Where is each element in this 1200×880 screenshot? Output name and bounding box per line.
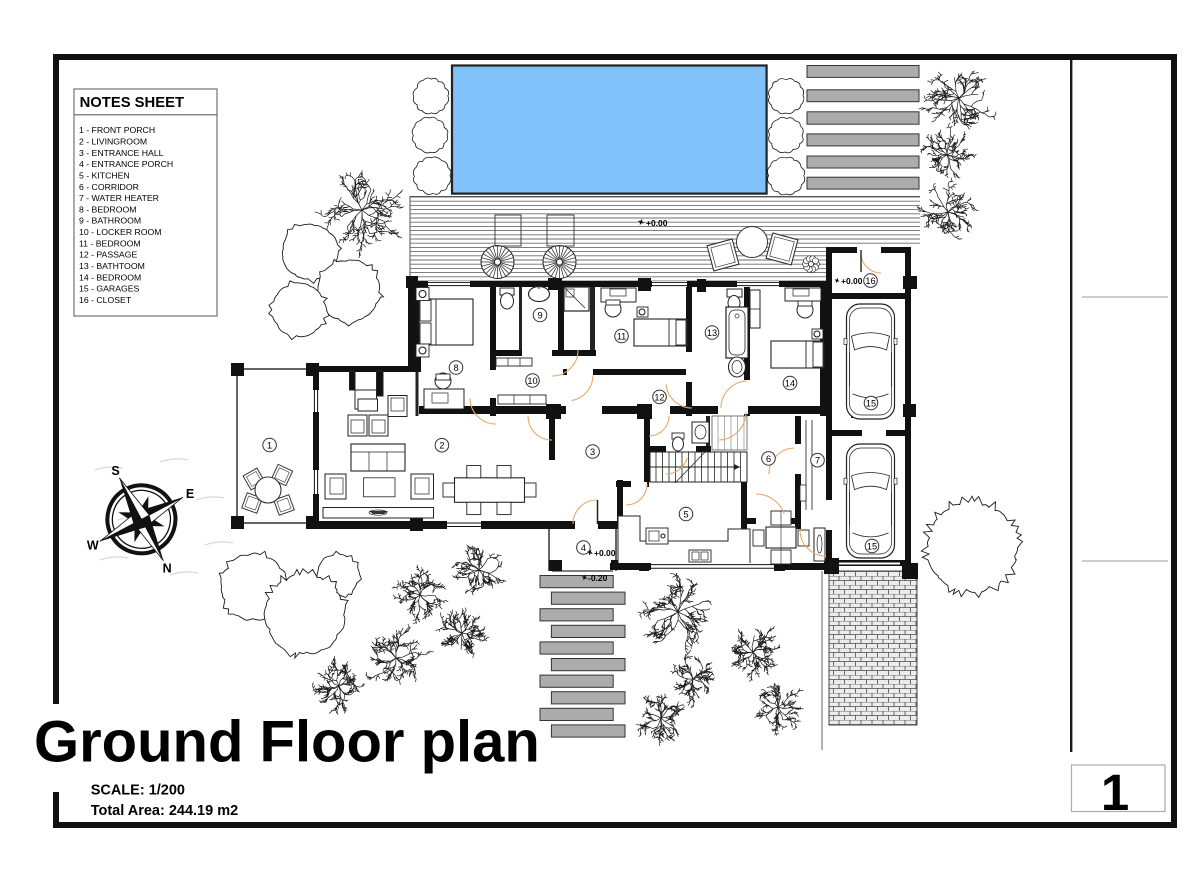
svg-text:9: 9 — [537, 310, 542, 320]
svg-text:2 - LIVINGROOM: 2 - LIVINGROOM — [79, 136, 147, 146]
svg-text:13: 13 — [707, 328, 717, 338]
svg-text:7 - WATER HEATER: 7 - WATER HEATER — [79, 193, 159, 203]
svg-text:2: 2 — [439, 441, 444, 451]
svg-text:1: 1 — [1101, 764, 1129, 821]
svg-text:N: N — [163, 561, 172, 575]
svg-text:1: 1 — [267, 440, 272, 450]
svg-text:+0.00: +0.00 — [646, 218, 668, 228]
svg-text:3: 3 — [590, 447, 595, 457]
svg-text:+0.00: +0.00 — [594, 548, 616, 558]
svg-text:SCALE: 1/200: SCALE: 1/200 — [91, 782, 185, 798]
svg-text:13 - BATHTOOM: 13 - BATHTOOM — [79, 261, 145, 271]
svg-text:15: 15 — [866, 398, 876, 408]
svg-text:16 - CLOSET: 16 - CLOSET — [79, 295, 132, 305]
svg-text:12: 12 — [654, 392, 664, 402]
svg-text:16: 16 — [865, 276, 875, 286]
svg-text:S: S — [111, 464, 119, 478]
svg-text:10: 10 — [527, 376, 537, 386]
svg-text:11: 11 — [617, 331, 627, 341]
svg-text:NOTES SHEET: NOTES SHEET — [80, 95, 184, 111]
svg-text:14 - BEDROOM: 14 - BEDROOM — [79, 272, 141, 282]
svg-text:-0.20: -0.20 — [588, 573, 608, 583]
svg-text:12 - PASSAGE: 12 - PASSAGE — [79, 250, 137, 260]
svg-text:6: 6 — [766, 454, 771, 464]
svg-text:W: W — [87, 539, 99, 553]
svg-text:9 - BATHROOM: 9 - BATHROOM — [79, 216, 141, 226]
svg-text:E: E — [186, 487, 194, 501]
svg-text:8: 8 — [453, 363, 458, 373]
svg-text:4: 4 — [581, 543, 586, 553]
svg-text:5 - KITCHEN: 5 - KITCHEN — [79, 170, 130, 180]
svg-text:+0.00: +0.00 — [841, 276, 863, 286]
svg-text:8 - BEDROOM: 8 - BEDROOM — [79, 204, 136, 214]
svg-text:15 - GARAGES: 15 - GARAGES — [79, 284, 140, 294]
svg-text:Total Area: 244.19 m2: Total Area: 244.19 m2 — [91, 803, 239, 819]
svg-text:15: 15 — [867, 541, 877, 551]
svg-text:11 - BEDROOM: 11 - BEDROOM — [79, 238, 141, 248]
svg-text:6 - CORRIDOR: 6 - CORRIDOR — [79, 182, 139, 192]
svg-text:4 - ENTRANCE PORCH: 4 - ENTRANCE PORCH — [79, 159, 173, 169]
svg-text:1 - FRONT PORCH: 1 - FRONT PORCH — [79, 125, 155, 135]
svg-text:3 - ENTRANCE HALL: 3 - ENTRANCE HALL — [79, 148, 164, 158]
svg-text:5: 5 — [683, 509, 688, 519]
svg-text:Ground Floor plan: Ground Floor plan — [34, 710, 540, 775]
svg-text:10 - LOCKER ROOM: 10 - LOCKER ROOM — [79, 227, 162, 237]
svg-text:7: 7 — [815, 456, 820, 466]
svg-text:14: 14 — [785, 378, 795, 388]
